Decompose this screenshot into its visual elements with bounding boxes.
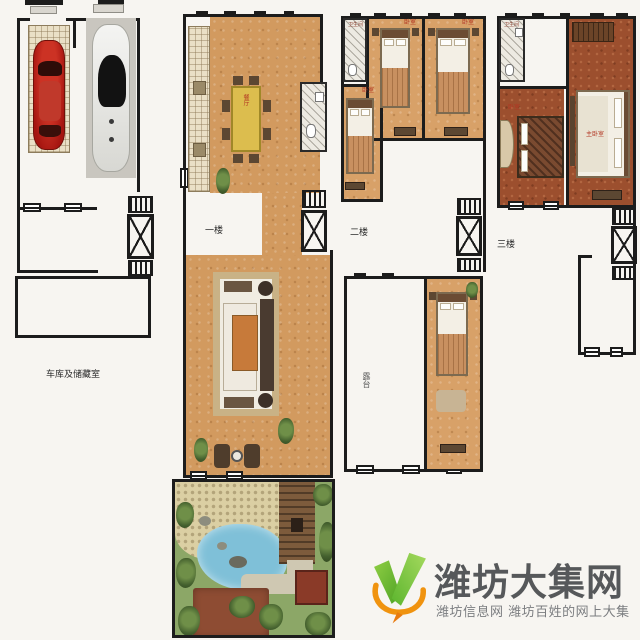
- dresser: [592, 190, 622, 200]
- wall: [633, 208, 636, 355]
- bathroom-floor3: 卫生间: [499, 18, 525, 82]
- floor3-label: 三楼: [497, 241, 515, 250]
- pillow: [521, 123, 528, 145]
- door-mark: [590, 13, 604, 19]
- window-symbol: [543, 201, 559, 210]
- window-symbol: [584, 347, 600, 357]
- pillow: [614, 98, 622, 128]
- wall: [578, 255, 581, 353]
- bedroom-label: 卧室: [508, 105, 520, 111]
- bed: [517, 116, 564, 178]
- tv-cabinet: [570, 96, 575, 166]
- door-mark: [616, 13, 628, 19]
- wall: [578, 255, 592, 258]
- master-bedroom-label: 主卧室: [586, 132, 604, 138]
- floorplan-image: 车库及储藏室 餐厅: [0, 0, 640, 640]
- wall: [566, 16, 569, 206]
- pillow: [521, 150, 528, 172]
- toilet-fixture: [505, 64, 514, 76]
- pillow: [614, 138, 622, 168]
- wall: [633, 16, 636, 208]
- site-tagline: 潍坊信息网 潍坊百姓的网上大集: [436, 606, 630, 619]
- wall: [497, 86, 569, 89]
- sink-fixture: [515, 28, 523, 37]
- bed-headboard: [624, 92, 628, 176]
- window-symbol: [610, 347, 623, 357]
- master-bed: 主卧室: [576, 90, 630, 178]
- site-name: 潍坊大集网: [434, 564, 624, 601]
- watermark: 潍坊大集网 潍坊信息网 潍坊百姓的网上大集: [368, 544, 640, 636]
- curved-seat: [500, 120, 514, 168]
- door-mark: [532, 13, 544, 19]
- wardrobe: [572, 22, 614, 42]
- window-symbol: [508, 201, 524, 210]
- site-logo-icon: [372, 552, 428, 628]
